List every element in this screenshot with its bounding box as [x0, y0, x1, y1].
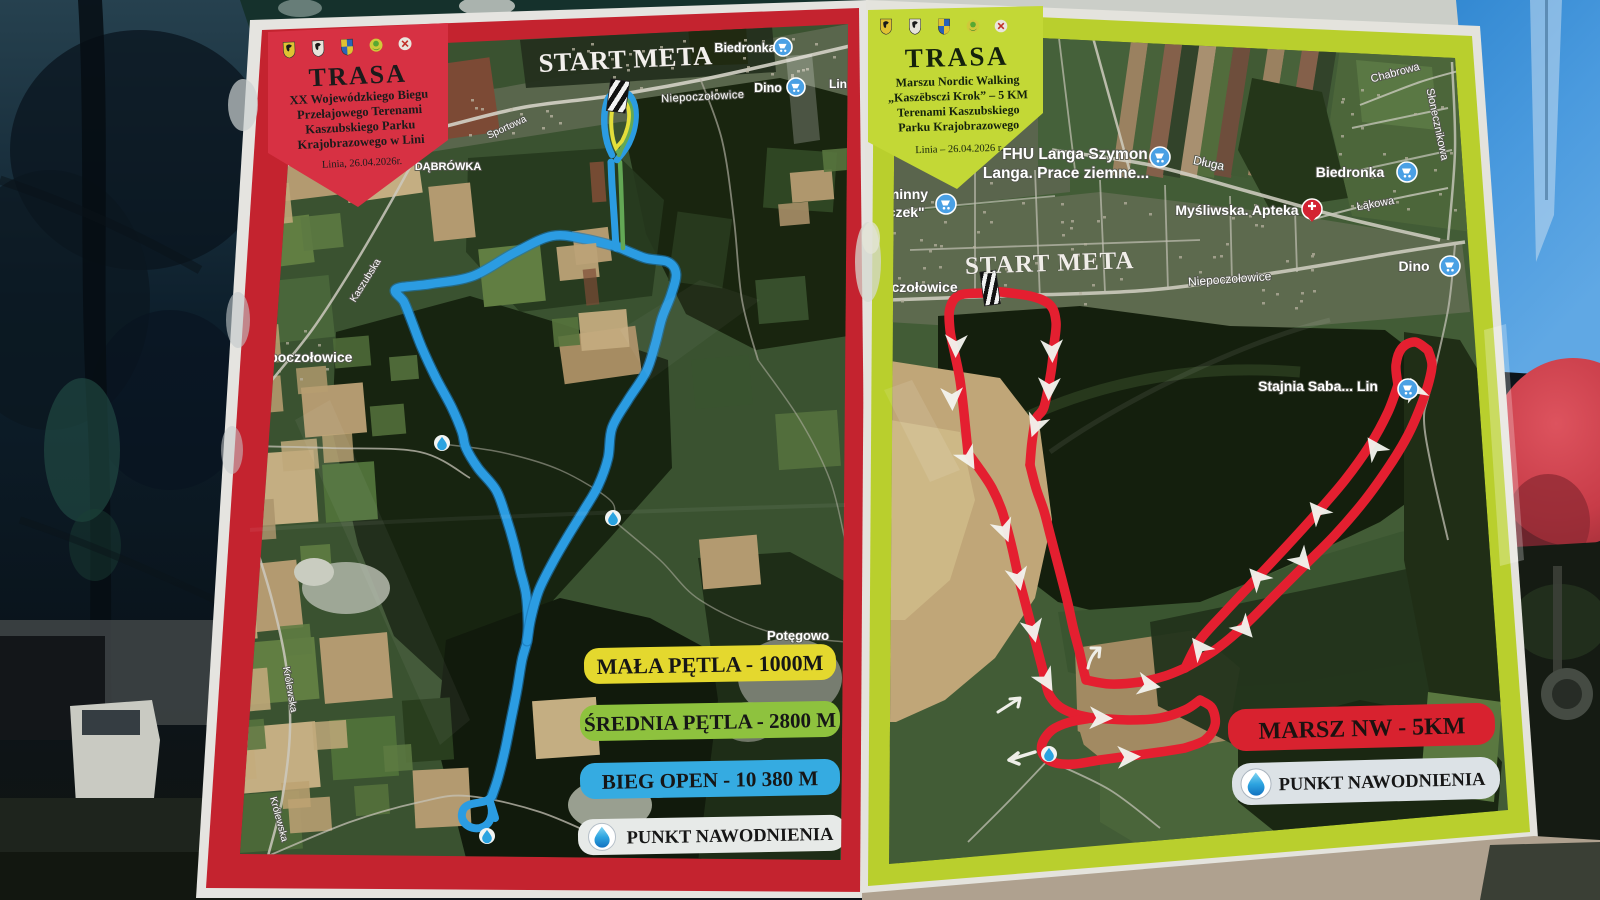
svg-text:MARSZ NW - 5KM: MARSZ NW - 5KM	[1258, 713, 1466, 744]
svg-text:DĄBRÓWKA: DĄBRÓWKA	[415, 160, 482, 173]
svg-text:Biedronka: Biedronka	[1316, 164, 1385, 180]
svg-text:MAŁA PĘTLA - 1000M: MAŁA PĘTLA - 1000M	[596, 650, 823, 679]
svg-text:BIEG OPEN - 10 380 M: BIEG OPEN - 10 380 M	[602, 766, 819, 794]
svg-text:PUNKT NAWODNIENIA: PUNKT NAWODNIENIA	[626, 825, 834, 849]
svg-text:TRASA: TRASA	[905, 41, 1010, 74]
svg-text:Dino: Dino	[754, 81, 782, 95]
svg-text:Stajnia Saba... Lin: Stajnia Saba... Lin	[1258, 378, 1378, 394]
svg-text:TRASA: TRASA	[308, 59, 407, 93]
svg-text:Myśliwska. Apteka: Myśliwska. Apteka	[1175, 202, 1298, 218]
svg-text:Langa. Prace ziemne...: Langa. Prace ziemne...	[983, 165, 1149, 182]
svg-text:Dino: Dino	[1398, 258, 1429, 274]
svg-text:ŚREDNIA PĘTLA - 2800 M: ŚREDNIA PĘTLA - 2800 M	[584, 708, 837, 736]
svg-text:Biedronka: Biedronka	[714, 41, 776, 55]
svg-text:FHU Langa Szymon: FHU Langa Szymon	[1002, 146, 1148, 163]
svg-text:Lin: Lin	[829, 77, 847, 91]
svg-text:Potęgowo: Potęgowo	[767, 628, 829, 643]
svg-text:Linia – 26.04.2026 r.: Linia – 26.04.2026 r.	[915, 143, 1003, 156]
